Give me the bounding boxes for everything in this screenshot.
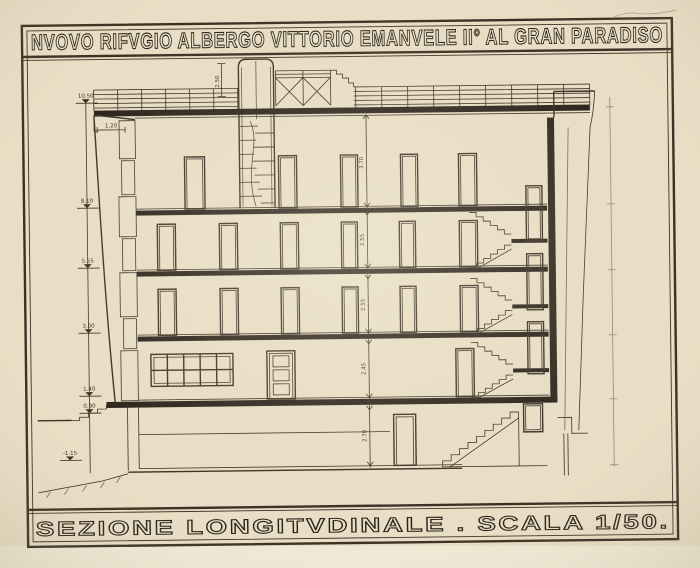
scan-vignette	[0, 0, 700, 568]
scanned-drawing-sheet: NVOVO RIFVGIO ALBERGO VITTORIO EMANVELE …	[0, 0, 700, 568]
blueprint-section-drawing: NVOVO RIFVGIO ALBERGO VITTORIO EMANVELE …	[0, 0, 700, 568]
